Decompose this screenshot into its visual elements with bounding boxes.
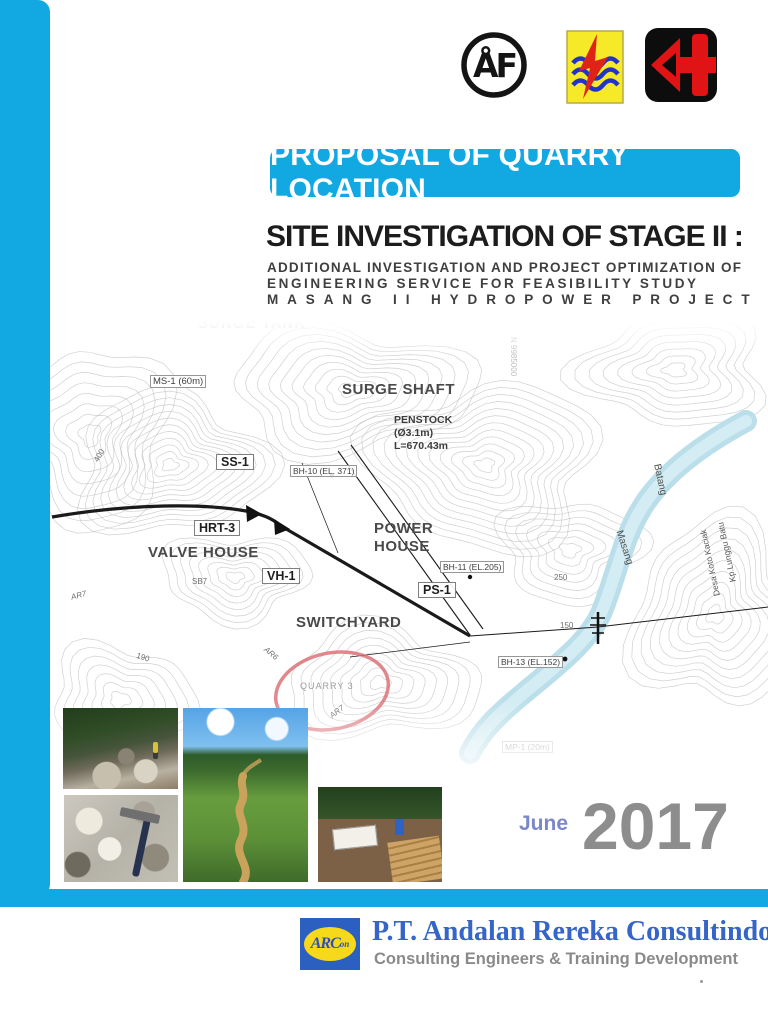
issue-year: 2017	[582, 793, 729, 859]
arcon-suffix: on	[340, 939, 350, 949]
company-tagline: Consulting Engineers & Training Developm…	[374, 950, 738, 969]
map-label-penstock-diameter: (Ø3.1m)	[394, 427, 433, 439]
borehole-dot	[563, 657, 568, 662]
arcon-company-logo: ARC on	[300, 918, 360, 970]
map-label-sb7: SB7	[192, 577, 207, 586]
map-label-valve-house: VALVE HOUSE	[148, 544, 259, 561]
photo-drilling-core-site	[318, 787, 442, 882]
arcon-ellipse: ARC on	[304, 927, 356, 961]
proposal-banner: PROPOSAL OF QUARRY LOCATION	[270, 149, 740, 197]
photo-access-trail	[183, 708, 308, 882]
proposal-banner-label: PROPOSAL OF QUARRY LOCATION	[270, 139, 740, 207]
map-label-ss1: SS-1	[216, 454, 254, 470]
bottom-accent-band	[0, 889, 768, 907]
map-label-switchyard: SWITCHYARD	[296, 614, 401, 631]
page-dot	[700, 980, 703, 983]
map-label-power: POWER	[374, 520, 433, 537]
photo-rock-face-with-hammer	[64, 795, 178, 882]
report-title: SITE INVESTIGATION OF STAGE II :	[266, 220, 746, 254]
map-contour-150: 150	[560, 621, 573, 630]
report-subtitle-line-1: ADDITIONAL INVESTIGATION AND PROJECT OPT…	[267, 260, 742, 275]
partner-company-logo	[645, 28, 717, 102]
map-label-mp1: MP-1 (20m)	[502, 741, 553, 753]
map-label-house: HOUSE	[374, 538, 430, 555]
map-label-ps1: PS-1	[418, 582, 456, 598]
map-label-northing: N 9985000	[509, 337, 518, 376]
core-box-sign	[332, 825, 378, 851]
trail-path	[183, 708, 308, 882]
map-label-bh13: BH-13 (EL.152)	[498, 656, 563, 668]
report-subtitle-line-2: ENGINEERING SERVICE FOR FEASIBILITY STUD…	[267, 276, 742, 291]
svg-text:ÅF: ÅF	[473, 45, 516, 85]
left-accent-stripe	[0, 0, 50, 898]
borehole-dot	[468, 575, 472, 579]
map-label-bh11: BH-11 (EL.205)	[440, 561, 504, 573]
flow-arrow	[246, 505, 262, 522]
af-engineering-logo: ÅF	[458, 25, 530, 105]
flow-arrow	[274, 519, 290, 535]
map-label-penstock-length: L=670.43m	[394, 440, 448, 452]
report-cover-page: ÅF PROPOSAL OF QUARRY LOCATION SITE INVE…	[0, 0, 768, 1024]
map-label-vh1: VH-1	[262, 568, 300, 584]
report-subtitle-line-3: MASANG II HYDROPOWER PROJECT	[267, 292, 742, 307]
arcon-acronym: ARC	[311, 935, 340, 953]
issue-month: June	[519, 812, 568, 836]
core-boxes	[387, 836, 442, 882]
map-label-ms1: MS-1 (60m)	[150, 375, 206, 388]
geologist-hammer-icon	[64, 795, 178, 882]
field-person	[153, 742, 158, 753]
company-name: P.T. Andalan Rereka Consultindo	[372, 916, 768, 948]
map-label-quarry3: QUARRY 3	[300, 681, 354, 691]
pln-electricity-logo	[566, 30, 624, 104]
foliage	[318, 787, 442, 819]
map-label-surge-shaft: SURGE SHAFT	[342, 381, 455, 398]
photo-rock-outcrop	[63, 708, 178, 789]
map-label-penstock: PENSTOCK	[394, 414, 452, 426]
map-label-hrt3: HRT-3	[194, 520, 240, 536]
map-contour-250: 250	[554, 573, 567, 582]
map-label-bh10: BH-10 (EL. 371)	[290, 465, 357, 477]
map-label-surge-tank: SURGE TANK	[198, 315, 306, 332]
worker	[395, 819, 404, 835]
